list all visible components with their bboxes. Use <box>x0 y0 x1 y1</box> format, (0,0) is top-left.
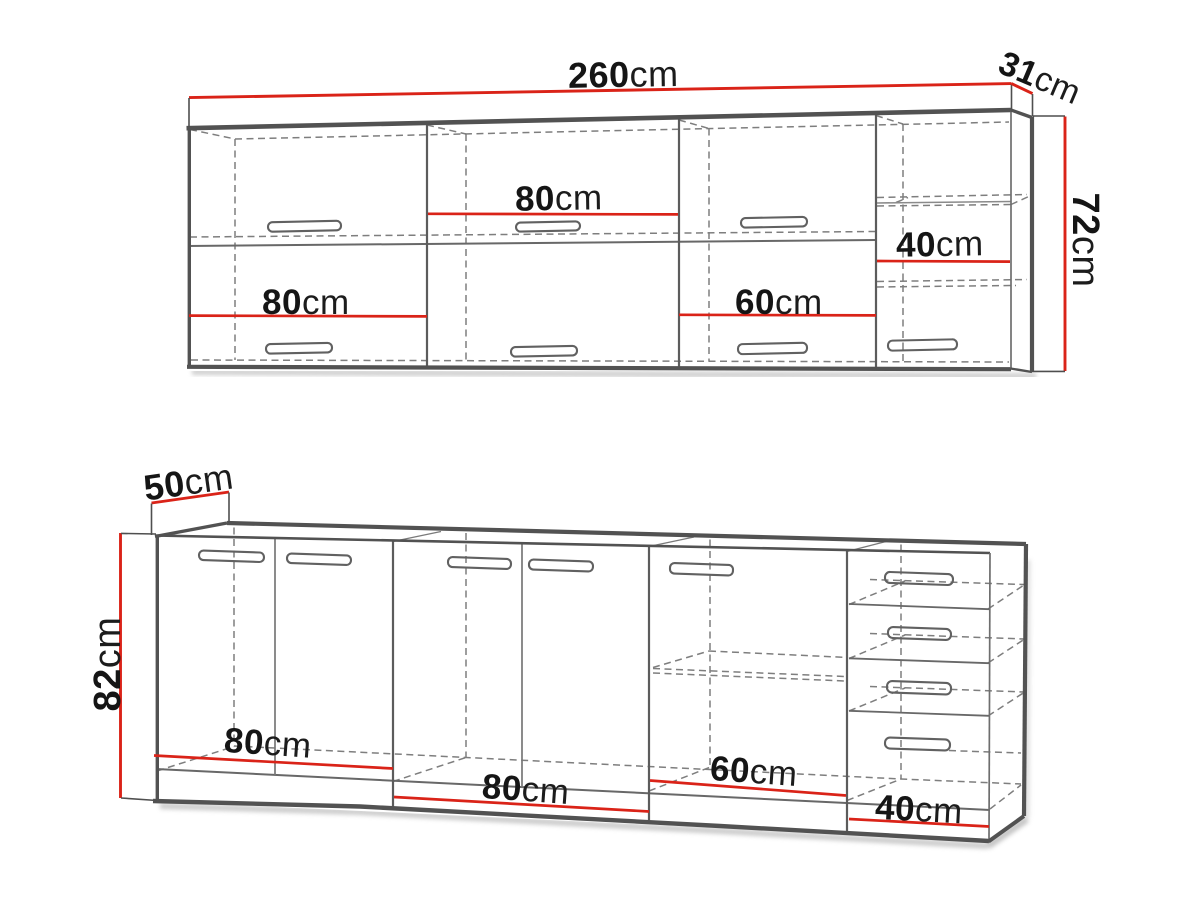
svg-text:82cm: 82cm <box>87 617 129 712</box>
svg-text:40cm: 40cm <box>896 224 984 265</box>
svg-text:60cm: 60cm <box>709 749 799 794</box>
svg-text:80cm: 80cm <box>515 178 603 219</box>
svg-text:80cm: 80cm <box>223 721 313 766</box>
svg-text:72cm: 72cm <box>1064 193 1106 288</box>
svg-text:80cm: 80cm <box>481 767 571 812</box>
svg-text:80cm: 80cm <box>262 283 350 322</box>
svg-text:60cm: 60cm <box>735 283 823 322</box>
svg-text:260cm: 260cm <box>568 53 679 96</box>
svg-text:40cm: 40cm <box>874 788 964 832</box>
